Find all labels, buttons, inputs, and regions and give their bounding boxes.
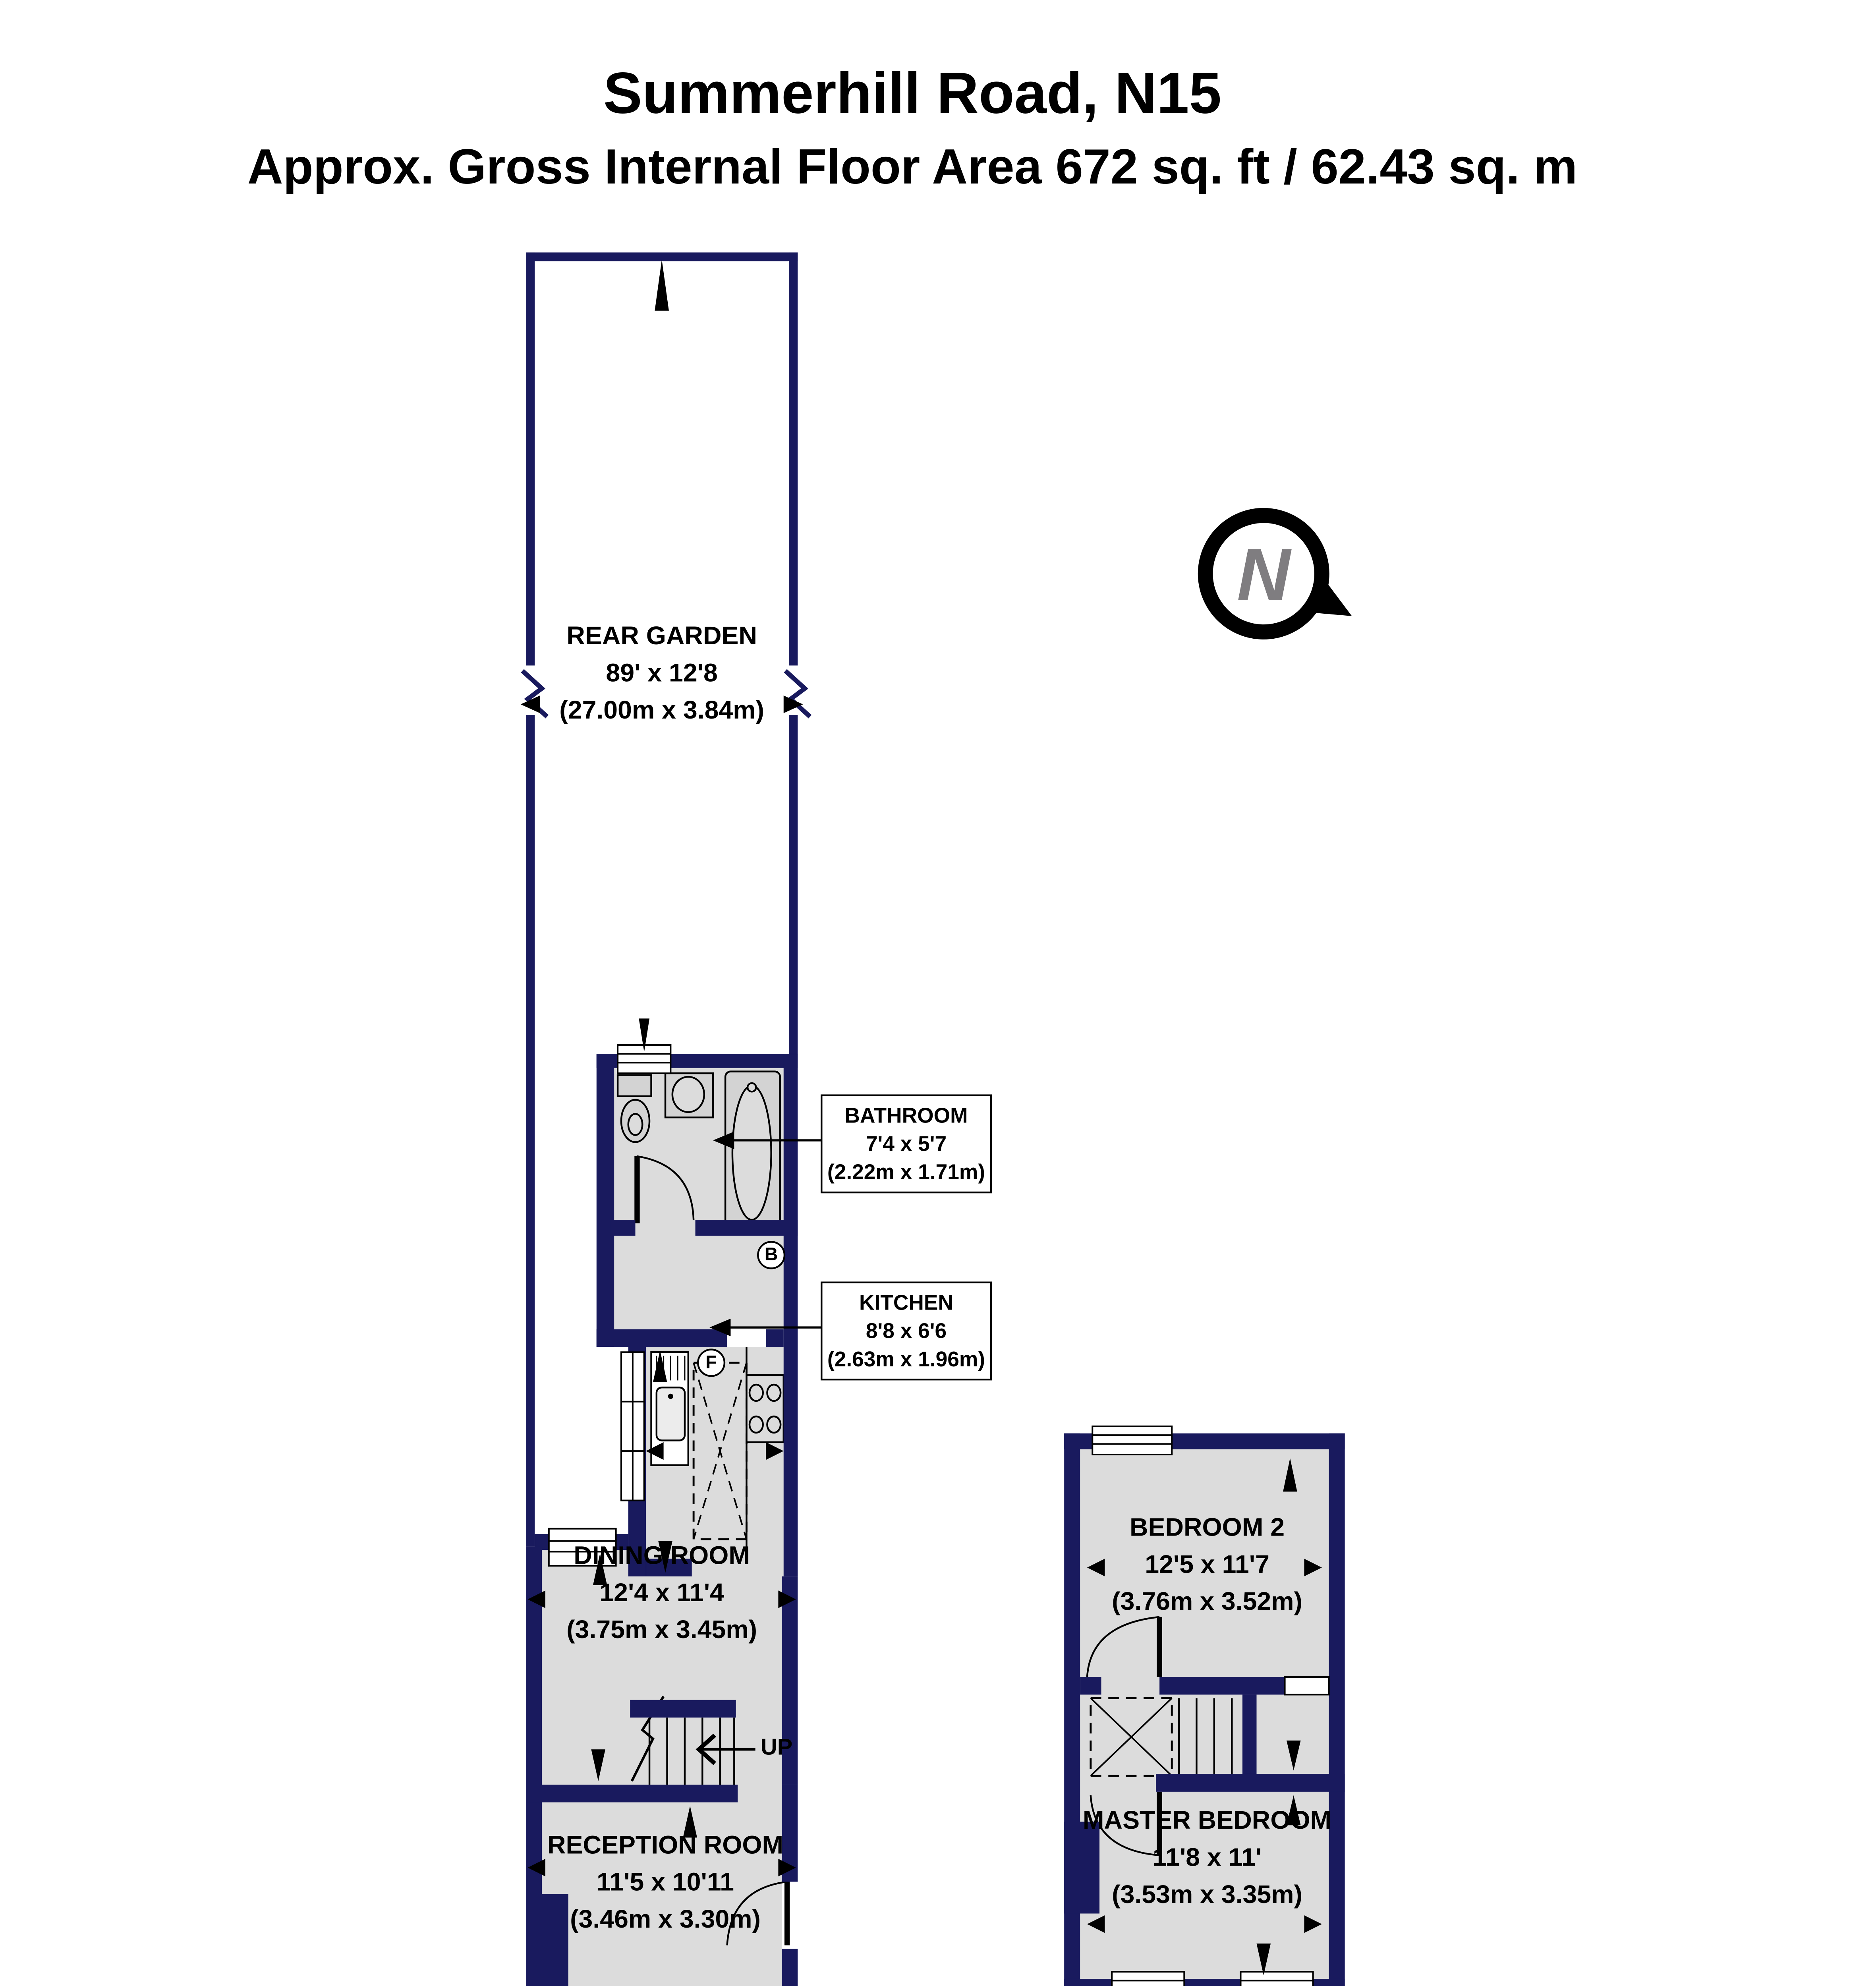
label-bedroom-2: BEDROOM 2 12'5 x 11'7 (3.76m x 3.52m) [1112, 1511, 1302, 1622]
garden-up-arrow [655, 259, 669, 311]
extension-right-wall [784, 1054, 798, 1576]
boiler-badge: B [757, 1241, 785, 1269]
page-subtitle: Approx. Gross Internal Floor Area 672 sq… [0, 139, 1825, 196]
floorplan-drawing: N [0, 0, 1876, 1986]
ff-landing-divider [1242, 1694, 1257, 1774]
compass-letter: N [1237, 533, 1292, 616]
hob [746, 1375, 783, 1442]
fridge-badge: F [697, 1348, 725, 1377]
bedroom2-window [1092, 1426, 1172, 1455]
stairs-up-label: UP [761, 1733, 792, 1760]
basin-bowl [672, 1077, 704, 1112]
north-compass: N [1206, 516, 1352, 632]
bathroom-bottom-wall-a [611, 1220, 635, 1236]
label-dining-room: DINING ROOM 12'4 x 11'4 (3.75m x 3.45m) [566, 1539, 757, 1650]
toilet-cistern [618, 1075, 651, 1096]
dining-reception-wall [526, 1785, 738, 1802]
plot-left-wall [526, 253, 535, 1547]
kitchen-top-wall [597, 1329, 727, 1347]
master-window-left [1112, 1972, 1184, 1986]
bath-tap [748, 1083, 756, 1092]
bathroom-left-wall [597, 1054, 614, 1347]
bathroom-bottom-wall-b [696, 1220, 798, 1236]
label-rear-garden: REAR GARDEN 89' x 12'8 (27.00m x 3.84m) [559, 620, 764, 731]
label-kitchen: KITCHEN 8'8 x 6'6 (2.63m x 1.96m) [821, 1281, 992, 1380]
reception-right-wall-b [782, 1949, 798, 1986]
ff-master-wall [1156, 1774, 1345, 1791]
page-title: Summerhill Road, N15 [0, 60, 1825, 127]
label-bathroom: BATHROOM 7'4 x 5'7 (2.22m x 1.71m) [821, 1094, 992, 1193]
stair-bulkhead [630, 1700, 736, 1717]
label-reception-room: RECEPTION ROOM 11'5 x 10'11 (3.46m x 3.3… [547, 1829, 783, 1940]
ff-bedroom2-wall [1159, 1677, 1285, 1694]
kitchen-top-stub [766, 1329, 783, 1347]
garden-right-wall [789, 253, 798, 1054]
label-master-bedroom: MASTER BEDROOM 11'8 x 11' (3.53m x 3.35m… [1083, 1804, 1331, 1915]
floorplan-page: N Summerhill Road, N15 Approx. Gross Int… [0, 0, 1876, 1986]
master-window-right [1240, 1972, 1313, 1986]
ff-landing-stub-left [1080, 1677, 1101, 1694]
landing-window [1285, 1677, 1329, 1694]
